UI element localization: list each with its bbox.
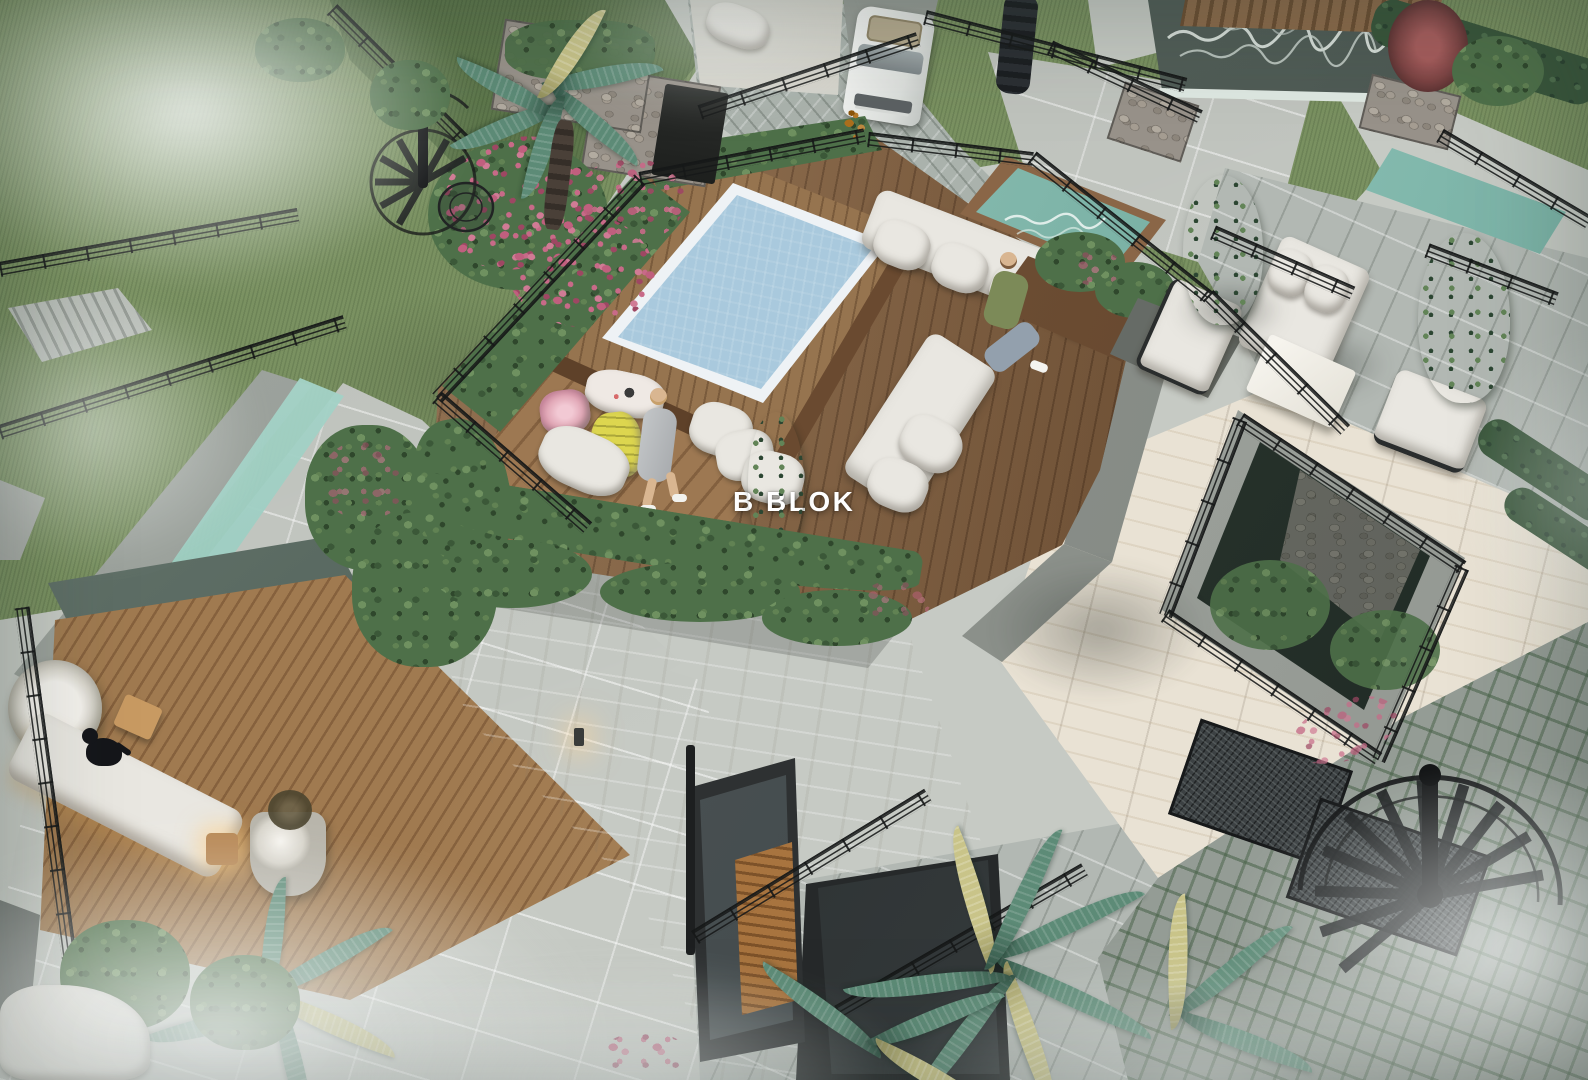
lightwell-plants xyxy=(1210,560,1330,650)
person-head xyxy=(650,388,667,405)
balcony-post xyxy=(686,745,695,955)
ivy-clump xyxy=(432,540,592,608)
aerial-render-scene: B BLOK xyxy=(0,0,1588,1080)
planter-flowers xyxy=(1070,250,1122,286)
wall-sconce-light xyxy=(574,728,584,746)
person-shoe xyxy=(672,494,687,502)
edge-flowers xyxy=(860,580,930,626)
shrub xyxy=(1452,36,1544,106)
potted-plant xyxy=(268,790,312,830)
person-head xyxy=(1000,252,1017,269)
terrace-cast-shadow xyxy=(990,560,1210,700)
climbing-flowers xyxy=(320,440,410,520)
black-cat xyxy=(86,738,122,766)
